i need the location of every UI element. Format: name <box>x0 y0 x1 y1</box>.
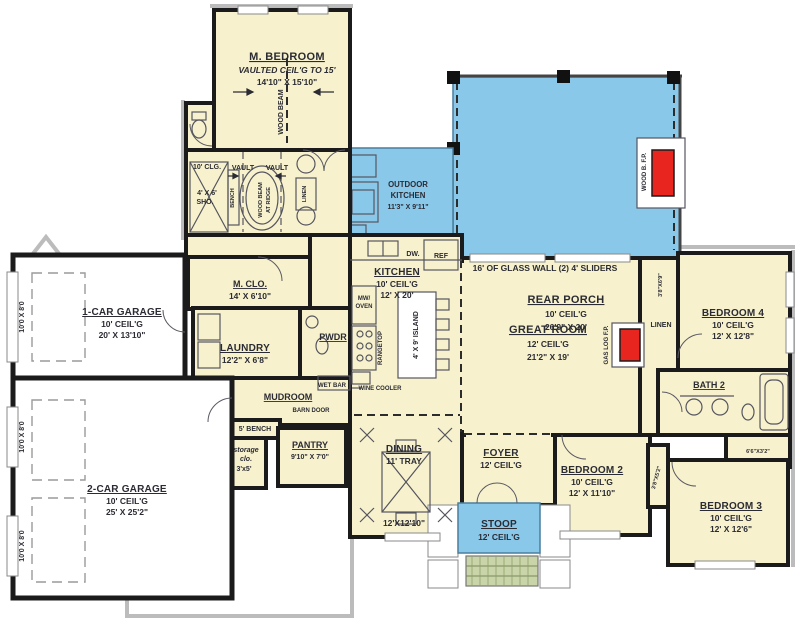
label-closet-66x32: 6'6"X3'2" <box>746 449 770 455</box>
label-vault-1: VAULT <box>232 165 255 172</box>
wood-burning-fireplace <box>652 150 674 196</box>
label-foyer: FOYER <box>483 448 519 459</box>
gas-log-fireplace <box>620 329 640 361</box>
label-closet-38x69: 3'8"X6'9" <box>658 273 664 297</box>
label-garage1-dims: 20' X 13'10" <box>99 330 146 340</box>
label-outdoor-kitchen-2: KITCHEN <box>391 191 426 200</box>
label-wine-cooler: WINE COOLER <box>359 386 403 392</box>
porch-post <box>557 70 570 83</box>
label-bench5: 5' BENCH <box>239 426 271 433</box>
label-storage-3: 3'x5' <box>236 466 251 473</box>
label-pantry-dims: 9'10" X 7'0" <box>291 454 329 461</box>
label-dining-dims: 12'X12'10" <box>383 518 425 528</box>
label-mw-2: OVEN <box>355 304 372 310</box>
label-bedroom3-dims: 12' X 12'6" <box>710 524 752 534</box>
label-kitchen-ceil: 10' CEIL'G <box>376 279 418 289</box>
label-rangetop: RANGETOP <box>378 331 384 365</box>
label-m-clo-dims: 14' X 6'10" <box>229 291 271 301</box>
floor-plan-svg: M. BEDROOM VAULTED CEIL'G TO 15' 14'10" … <box>0 0 800 629</box>
label-rear-porch-ceil: 10' CEIL'G <box>545 309 587 319</box>
label-garage-door-3: 10'0 X 8'0 <box>19 530 26 561</box>
label-garage2-dims: 25' X 25'2" <box>106 507 148 517</box>
label-bedroom4-dims: 12' X 12'8" <box>712 331 754 341</box>
label-laundry-dims: 12'2" X 6'8" <box>222 355 268 365</box>
label-kitchen: KITCHEN <box>374 267 420 278</box>
label-great-room-ceil: 12' CEIL'G <box>527 339 569 349</box>
floor-plan-canvas: M. BEDROOM VAULTED CEIL'G TO 15' 14'10" … <box>0 0 800 629</box>
label-garage-door-2: 10'0 X 8'0 <box>19 421 26 452</box>
label-bedroom3-ceil: 10' CEIL'G <box>710 513 752 523</box>
label-wood-fp: WOOD B. F.P. <box>642 153 648 192</box>
label-bedroom2-dims: 12' X 11'10" <box>569 488 615 498</box>
label-stoop: STOOP <box>481 519 517 530</box>
label-wood-beam-ridge-1: WOOD BEAM <box>258 182 264 218</box>
label-garage-door-1: 10'0 X 8'0 <box>19 301 26 332</box>
garage-door-opening <box>7 407 18 467</box>
label-m-bedroom: M. BEDROOM <box>249 51 325 63</box>
label-outdoor-kitchen-dims: 11'3" X 9'11" <box>387 204 428 211</box>
label-wood-beam: WOOD BEAM <box>278 89 285 134</box>
great-room-fireplace <box>612 323 644 367</box>
label-dining: DINING <box>386 444 422 455</box>
label-bedroom2-ceil: 10' CEIL'G <box>571 477 613 487</box>
label-pantry: PANTRY <box>292 440 328 450</box>
label-linen-bath: LINEN <box>302 186 308 203</box>
label-garage1-ceil: 10' CEIL'G <box>101 319 143 329</box>
label-wood-beam-ridge-2: AT RIDGE <box>266 187 272 213</box>
label-m-bedroom-dims: 14'10" X 15'10" <box>257 77 317 87</box>
label-wet-bar: WET BAR <box>318 383 347 389</box>
label-garage2-ceil: 10' CEIL'G <box>106 496 148 506</box>
label-laundry: LAUNDRY <box>220 343 270 354</box>
stoop-region <box>428 503 570 588</box>
label-mw-1: MW/ <box>358 296 371 302</box>
label-garage1: 1-CAR GARAGE <box>82 307 162 318</box>
label-bedroom4-ceil: 10' CEIL'G <box>712 320 754 330</box>
garage-door-opening <box>7 516 18 576</box>
room-hall2 <box>310 235 350 310</box>
label-stoop-ceil: 12' CEIL'G <box>478 532 520 542</box>
front-steps <box>466 556 538 586</box>
label-m-bedroom-note: VAULTED CEIL'G TO 15' <box>238 65 336 75</box>
label-great-room-dims: 21'2" X 19' <box>527 352 569 362</box>
label-kitchen-dims: 12' X 20' <box>380 290 413 300</box>
label-linen-right: LINEN <box>651 322 672 329</box>
label-storage-2: clo. <box>240 456 252 463</box>
room-foyer <box>462 435 555 505</box>
label-shower-2: SHO. <box>196 199 213 206</box>
label-shower-1: 4' X 6' <box>197 190 217 197</box>
label-mudroom: MUDROOM <box>264 392 313 402</box>
label-10clg: 10' CLG. <box>193 164 221 171</box>
garage-door-opening <box>7 272 18 362</box>
label-outdoor-kitchen-1: OUTDOOR <box>388 180 428 189</box>
label-gas-fp: GAS LOG F.P. <box>604 325 610 364</box>
label-great-room: GREAT ROOM <box>509 324 587 336</box>
label-bedroom4: BEDROOM 4 <box>702 308 765 319</box>
label-bench: BENCH <box>230 188 236 208</box>
label-foyer-ceil: 12' CEIL'G <box>480 460 522 470</box>
label-ref: REF <box>434 253 449 260</box>
label-bath2: BATH 2 <box>693 380 725 390</box>
porch-post <box>447 71 460 84</box>
label-m-clo: M. CLO. <box>233 279 267 289</box>
label-island: 4' X 9' ISLAND <box>413 311 420 359</box>
label-dining-ceil: 11' TRAY <box>386 456 422 466</box>
label-storage-1: storage <box>233 447 258 454</box>
label-barn-door: BARN DOOR <box>293 408 331 414</box>
label-vault-2: VAULT <box>266 165 289 172</box>
label-glass-wall: 16' OF GLASS WALL (2) 4' SLIDERS <box>473 263 618 273</box>
label-rear-porch: REAR PORCH <box>528 294 605 306</box>
porch-post <box>667 71 680 84</box>
label-bedroom3: BEDROOM 3 <box>700 501 763 512</box>
label-dw: DW. <box>406 251 419 258</box>
label-garage2: 2-CAR GARAGE <box>87 484 167 495</box>
label-bedroom2: BEDROOM 2 <box>561 465 624 476</box>
label-pwdr: PWDR <box>319 332 347 342</box>
